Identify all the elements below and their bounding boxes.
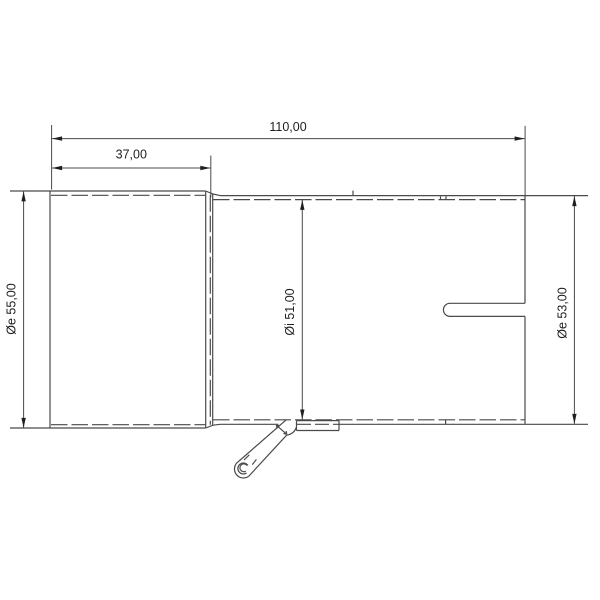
svg-text:110,00: 110,00 — [269, 120, 306, 134]
svg-text:Øe 53,00: Øe 53,00 — [556, 287, 570, 338]
svg-text:Øi 51,00: Øi 51,00 — [283, 288, 297, 335]
svg-text:Øe 55,00: Øe 55,00 — [5, 283, 19, 334]
svg-text:37,00: 37,00 — [116, 148, 147, 162]
